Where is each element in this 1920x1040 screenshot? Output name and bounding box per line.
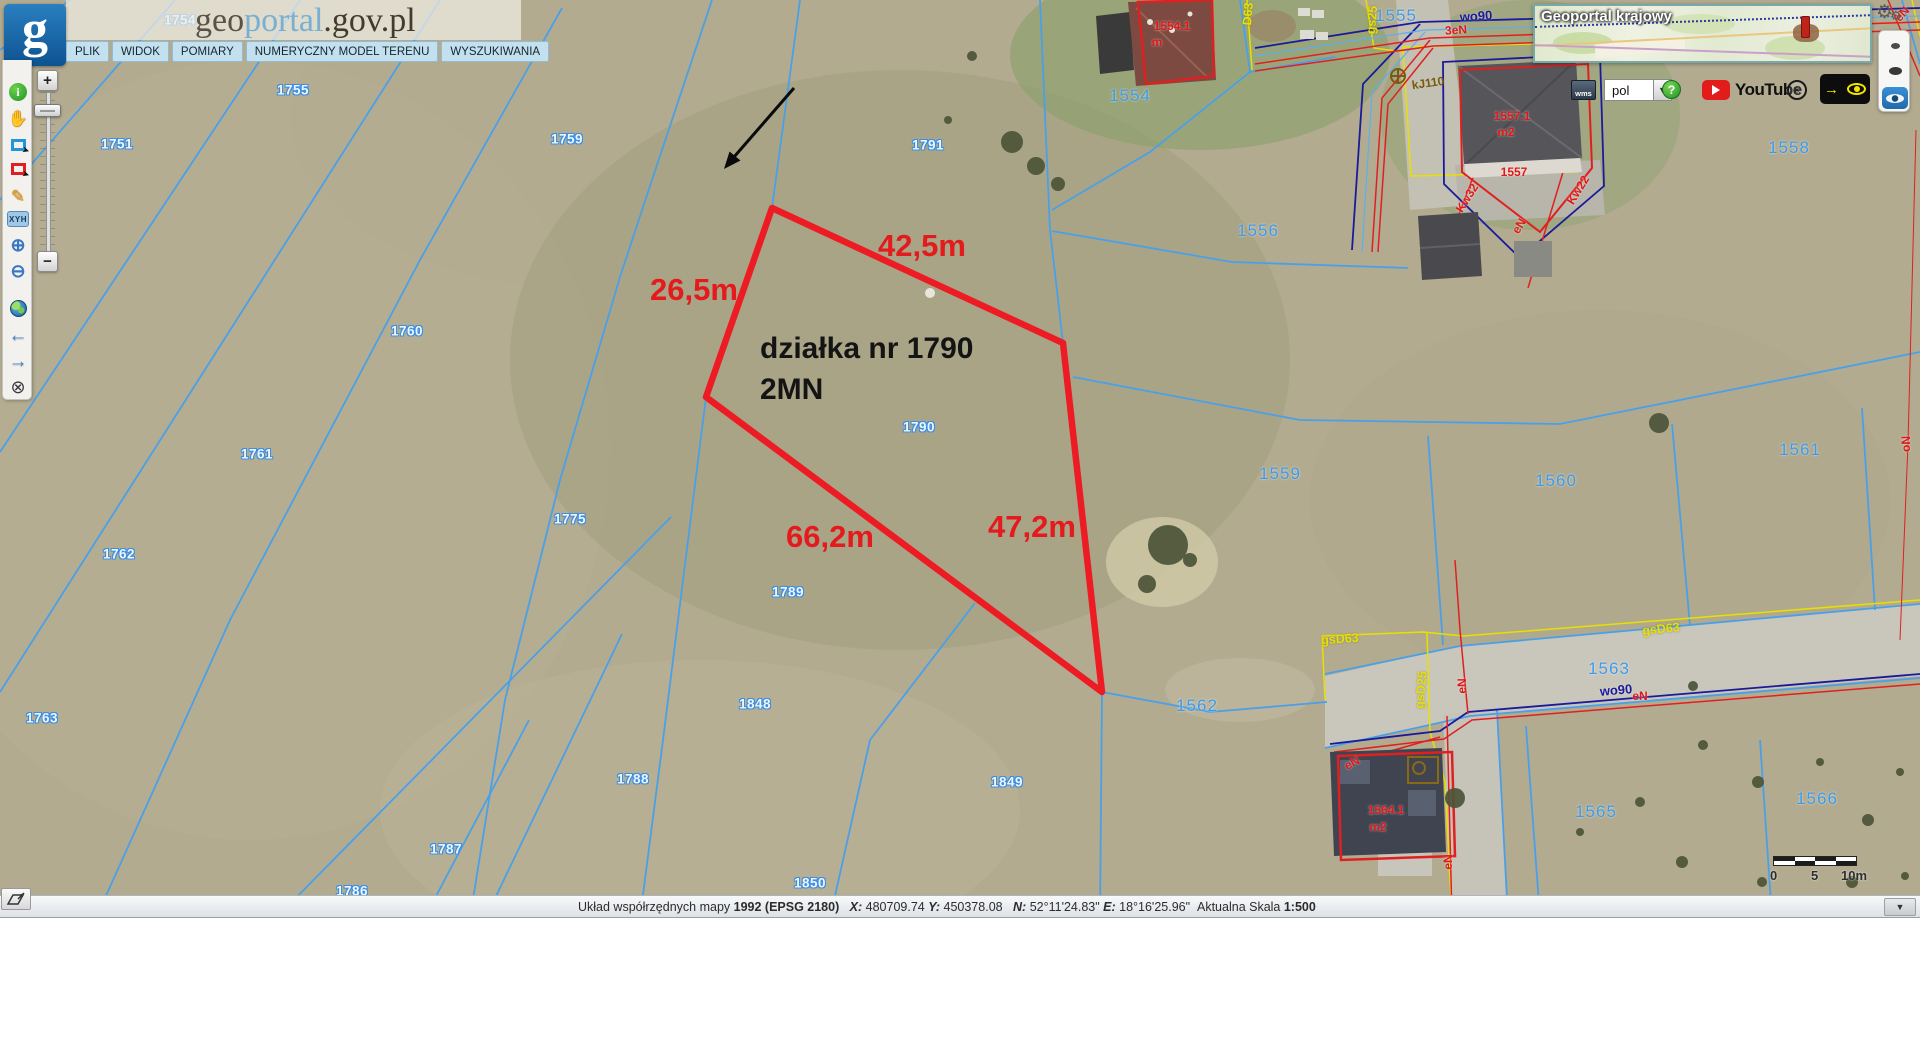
wheel-icon: ✳ <box>1792 84 1801 97</box>
scale-label-5: 5 <box>1811 868 1818 883</box>
triangle-down-icon: ▼ <box>1896 902 1905 912</box>
house-1564 <box>1330 748 1455 860</box>
red-select-rect-icon <box>11 163 26 175</box>
status-bar: Układ współrzędnych mapy 1992 (EPSG 2180… <box>0 895 1920 918</box>
menu-plik[interactable]: PLIK <box>66 41 109 62</box>
scale-bar: 0 5 10m <box>1773 856 1857 866</box>
forward-arrow-icon: → <box>9 351 28 373</box>
status-segment: 18°16'25.96" <box>1116 900 1197 914</box>
select-area-blue-button[interactable] <box>7 134 29 156</box>
full-extent-button[interactable] <box>7 297 29 319</box>
globe-icon <box>10 300 27 317</box>
status-segment: 480709.74 <box>862 900 928 914</box>
zoom-in-magnifier-icon: ⊕ <box>10 235 25 256</box>
geoportal-app: 1754175517511759179117601790176117751762… <box>0 0 1920 1040</box>
clear-button[interactable]: ⊗ <box>7 376 29 398</box>
visibility-low-button[interactable] <box>1891 43 1900 49</box>
title-portal: portal <box>244 2 323 39</box>
language-select[interactable]: pol <box>1604 79 1654 101</box>
pencil-icon: ✎ <box>11 187 25 207</box>
zoom-slider: + − <box>36 70 60 272</box>
parcel-note-line2: 2MN <box>760 369 973 410</box>
clear-x-icon: ⊗ <box>10 377 25 398</box>
status-segment: E: <box>1103 900 1116 914</box>
extent-tool-button[interactable] <box>1 888 31 910</box>
back-arrow-icon: ← <box>9 325 28 347</box>
minimap-marker <box>1801 16 1810 38</box>
visibility-mid-button[interactable] <box>1889 67 1902 75</box>
gear-small-icon: ⚙ <box>1890 8 1902 24</box>
status-segment: 450378.08 <box>940 900 1013 914</box>
layer-visibility-panel <box>1878 30 1910 112</box>
wms-icon: wms <box>1575 89 1592 98</box>
menu-pomiary[interactable]: POMIARY <box>172 41 243 62</box>
overview-map-title: Geoportal krajowy <box>1541 8 1672 25</box>
overview-map[interactable]: Geoportal krajowy <box>1533 4 1872 63</box>
scale-label-0: 0 <box>1770 868 1777 883</box>
zoom-in-button[interactable]: + <box>37 70 58 91</box>
zoom-slider-handle[interactable] <box>34 104 61 117</box>
pan-hand-icon: ✋ <box>8 109 28 129</box>
wms-button[interactable]: wms <box>1571 80 1596 100</box>
draw-tool-button[interactable]: ✎ <box>7 186 29 208</box>
zoom-out-magnifier-icon: ⊖ <box>10 261 25 282</box>
title-gov-pl: .gov.pl <box>323 2 415 39</box>
scale-label-10m: 10m <box>1841 868 1867 883</box>
status-segment: X: <box>850 900 863 914</box>
aerial-map-graphics <box>0 0 1920 918</box>
menu-wyszukiwania[interactable]: WYSZUKIWANIA <box>441 41 549 62</box>
status-segment: N: <box>1013 900 1026 914</box>
parcel-note-annotation: działka nr 1790 2MN <box>760 328 973 410</box>
main-menu: PLIK WIDOK POMIARY NUMERYCZNY MODEL TERE… <box>66 41 549 62</box>
geoportal-logo[interactable]: g <box>4 4 66 66</box>
menu-numeryczny-model-terenu[interactable]: NUMERYCZNY MODEL TERENU <box>246 41 439 62</box>
status-segment: 1:500 <box>1284 900 1316 914</box>
xyh-icon: XYH <box>7 211 29 227</box>
status-segment: Y: <box>928 900 940 914</box>
kj110-symbol <box>1391 69 1405 83</box>
language-value: pol <box>1612 83 1629 98</box>
logo-letter: g <box>22 0 48 59</box>
next-view-button[interactable]: → <box>7 351 29 373</box>
wheel-settings-button[interactable]: ✳ <box>1787 80 1807 100</box>
question-mark-icon: ? <box>1668 83 1675 97</box>
zoom-in-tool-button[interactable]: ⊕ <box>7 234 29 256</box>
highlight-tools-panel: → <box>1820 74 1870 104</box>
app-title: geoportal.gov.pl <box>195 2 416 40</box>
settings-gears-button[interactable]: ⚙⚙ <box>1876 1 1910 27</box>
scale-bar-boxes <box>1773 856 1857 866</box>
statusbar-collapse-button[interactable]: ▼ <box>1884 898 1916 916</box>
status-segment: Aktualna Skala <box>1197 900 1284 914</box>
title-geo: geo <box>195 2 244 39</box>
help-button[interactable]: ? <box>1662 80 1681 99</box>
status-segment: Układ współrzędnych mapy <box>578 900 734 914</box>
polygon-arrow-icon <box>6 892 26 906</box>
coordinate-status-text: Układ współrzędnych mapy 1992 (EPSG 2180… <box>578 900 1316 914</box>
yellow-arrow-button[interactable]: → <box>1824 81 1839 98</box>
menu-widok[interactable]: WIDOK <box>112 41 169 62</box>
map-viewport[interactable]: 1754175517511759179117601790176117751762… <box>0 0 1920 918</box>
pan-tool-button[interactable]: ✋ <box>7 108 29 130</box>
status-segment <box>839 900 849 914</box>
previous-view-button[interactable]: ← <box>7 325 29 347</box>
status-segment: 52°11'24.83" <box>1026 900 1103 914</box>
visibility-full-button[interactable] <box>1882 87 1908 109</box>
info-tool-button[interactable]: i <box>7 81 29 103</box>
zoom-out-tool-button[interactable]: ⊖ <box>7 260 29 282</box>
select-area-red-button[interactable] <box>7 158 29 180</box>
blue-select-rect-icon <box>11 139 26 151</box>
yellow-eye-button[interactable] <box>1847 83 1866 95</box>
parcel-note-line1: działka nr 1790 <box>760 328 973 369</box>
info-icon: i <box>9 83 27 101</box>
map-tools-toolbar: i ✋ ✎ XYH ⊕ ⊖ ← → ⊗ <box>2 60 32 400</box>
zoom-out-button[interactable]: − <box>37 251 58 272</box>
status-segment: 1992 (EPSG 2180) <box>734 900 840 914</box>
xyh-coordinates-button[interactable]: XYH <box>7 208 29 230</box>
youtube-play-icon <box>1702 80 1730 100</box>
